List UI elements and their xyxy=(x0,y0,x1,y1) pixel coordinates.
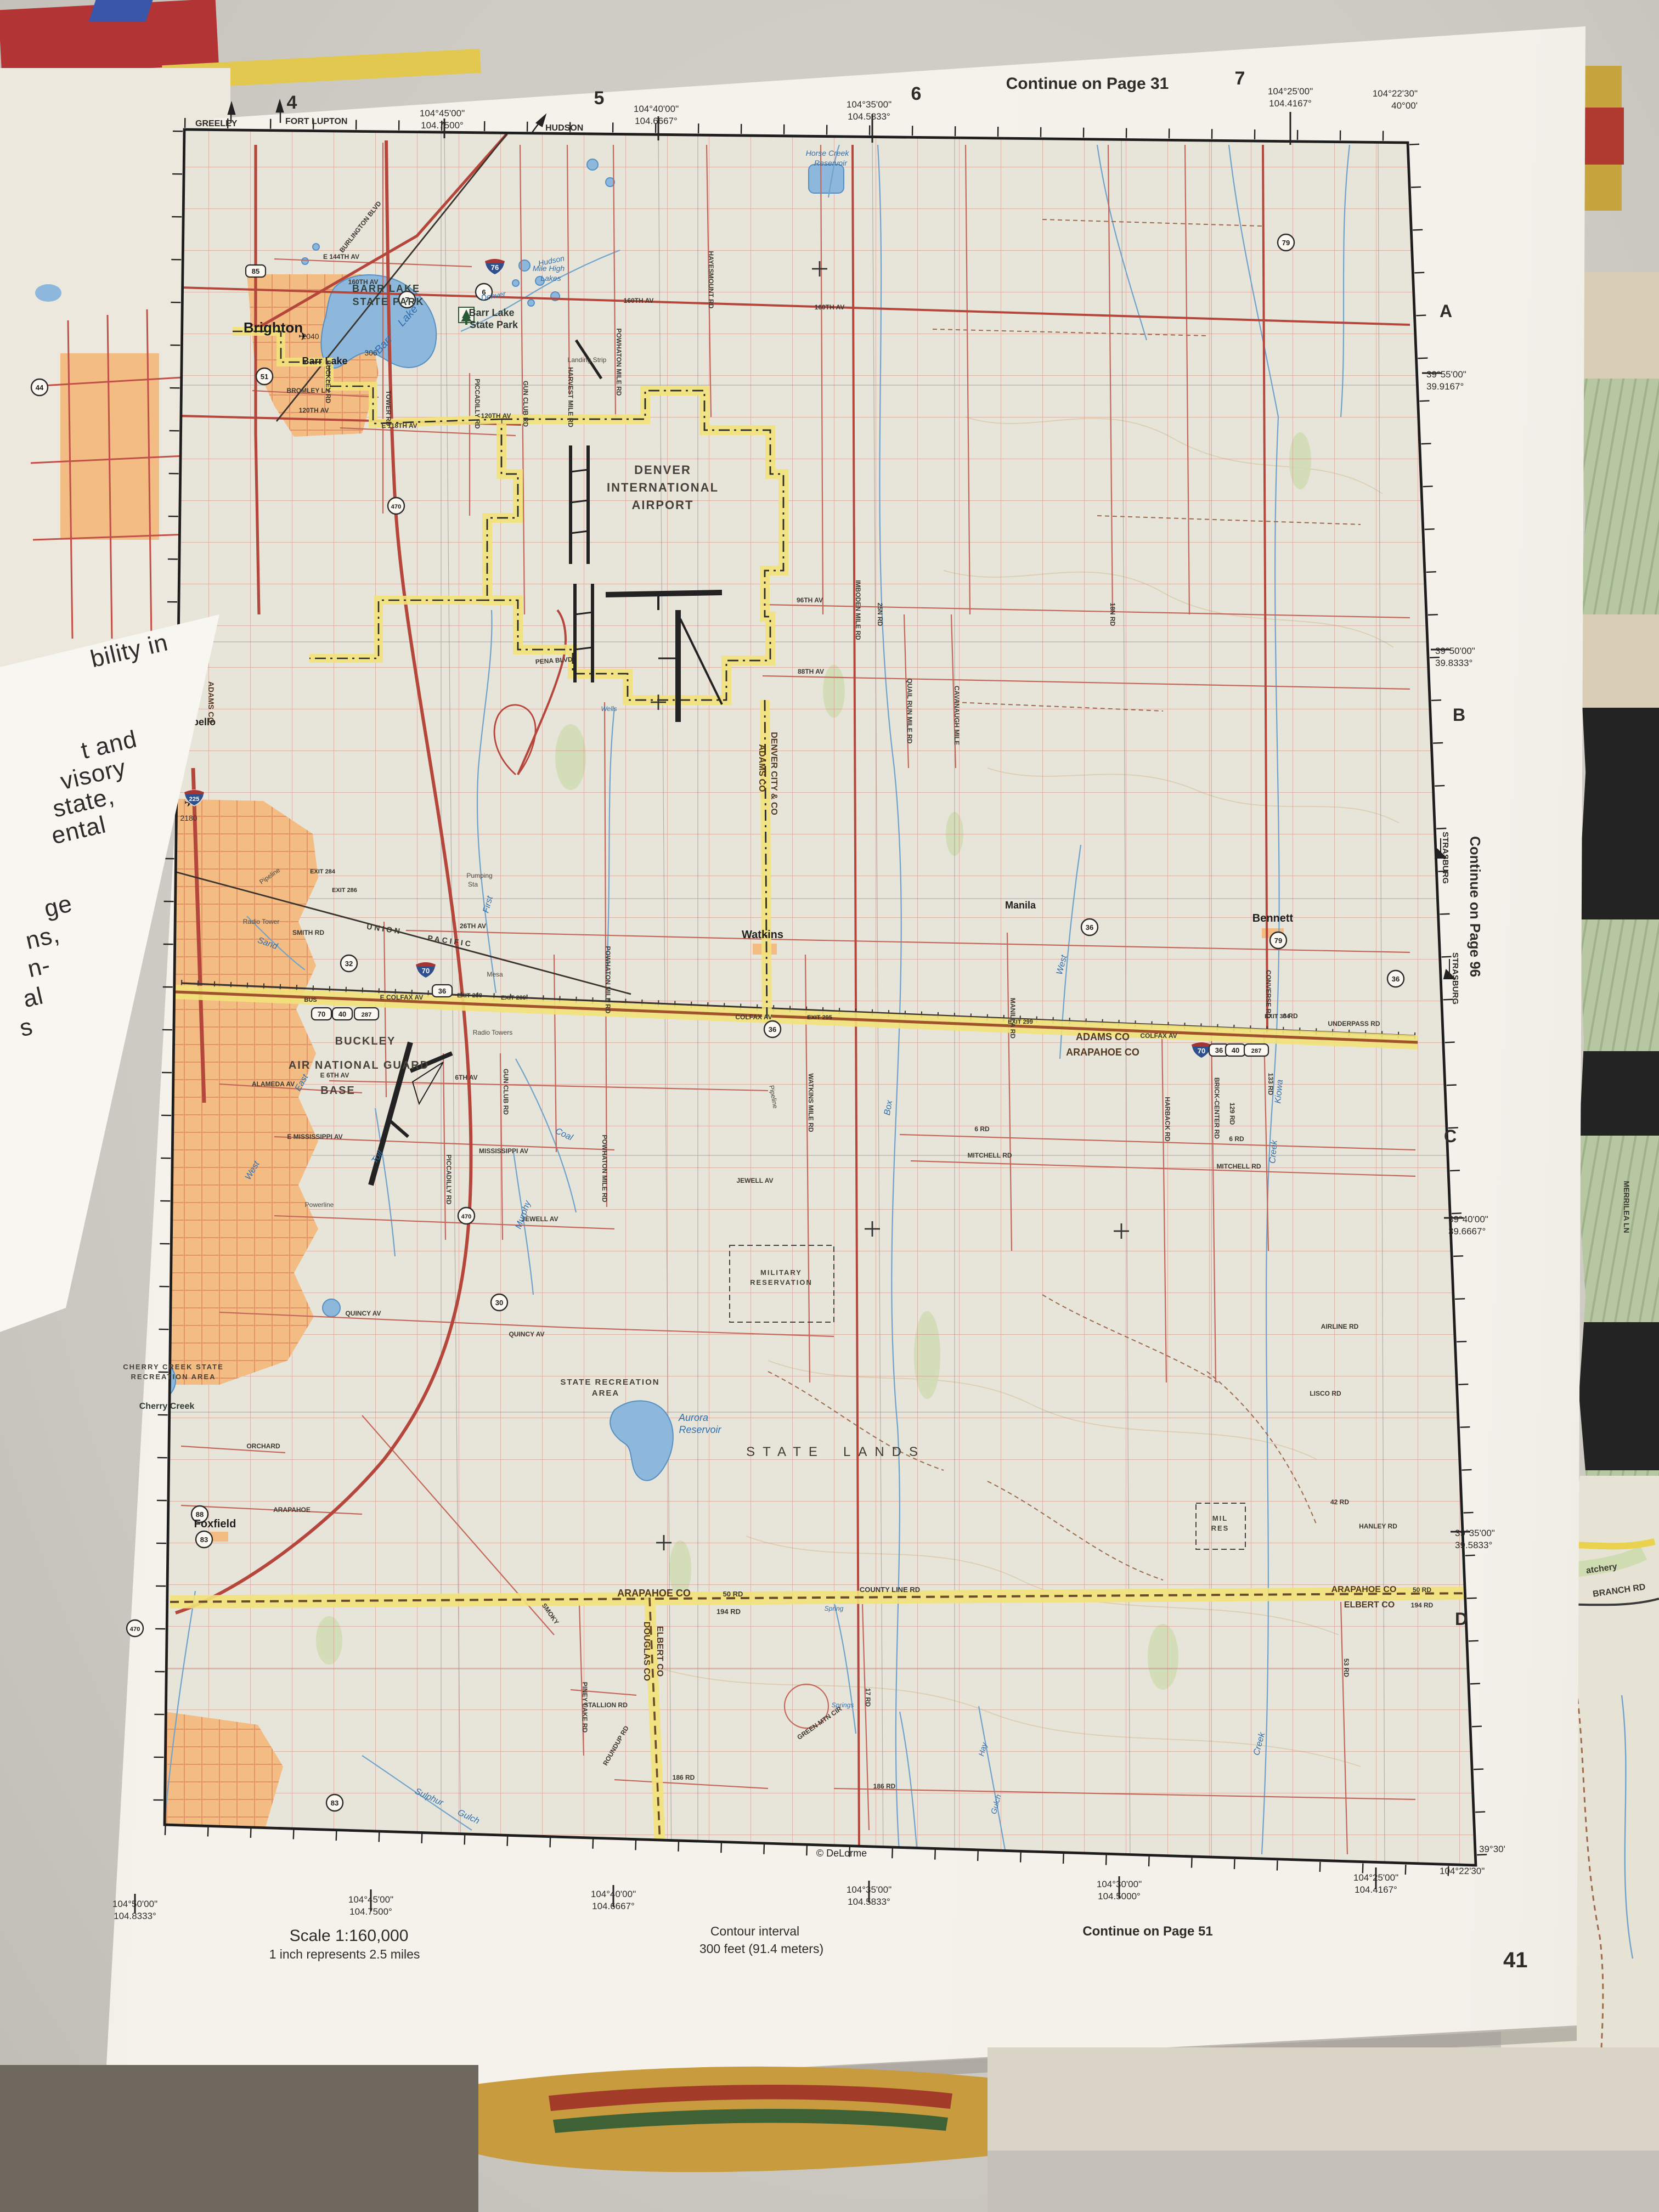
map-label: EXIT 299 xyxy=(1008,1019,1033,1025)
top-coord-1: 104°45'00"104.7500° xyxy=(420,108,465,131)
map-label: Radio Tower xyxy=(243,918,279,926)
svg-text:70: 70 xyxy=(318,1010,325,1018)
us-route-shield-icon: 70 xyxy=(312,1008,331,1020)
svg-text:70: 70 xyxy=(422,967,430,975)
map-label: EXIT 304 xyxy=(1265,1013,1290,1020)
svg-text:83: 83 xyxy=(331,1799,338,1807)
map-label: ARAPAHOE CO xyxy=(1066,1047,1139,1058)
map-label: STATE xyxy=(746,1444,825,1459)
map-label: POWHATON MILE RD xyxy=(604,946,612,1014)
state-route-icon: 36 xyxy=(1387,970,1404,987)
right-coord-4: 39°35'00"39.5833° xyxy=(1455,1527,1495,1550)
grid-letter-A: A xyxy=(1440,303,1452,323)
map-label: UNDERPASS RD xyxy=(1328,1020,1380,1028)
map-label: POWHATON MILE RD xyxy=(601,1135,608,1203)
map-label: 50 RD xyxy=(1413,1586,1431,1594)
svg-text:225: 225 xyxy=(189,796,200,803)
map-label: AIR NATIONAL GUARD xyxy=(289,1059,429,1071)
map-label: PICCADILLY RD xyxy=(445,1154,453,1205)
map-label: 18N RD xyxy=(1109,603,1116,627)
bottom-coord-corner-lat: 39°30' xyxy=(1479,1843,1505,1855)
top-coord-2: 104°40'00"104.6667° xyxy=(634,103,679,126)
grid-letter-B: B xyxy=(1453,707,1465,726)
map-label: ARAPAHOE xyxy=(273,1506,311,1514)
map-label: WATKINS MILE RD xyxy=(807,1073,815,1132)
us-route-shield-icon: 287 xyxy=(354,1008,379,1020)
map-label: © DeLorme xyxy=(816,1848,867,1859)
map-label: AREA xyxy=(592,1389,620,1398)
map-label: Sta xyxy=(468,881,478,888)
map-label: JEWELL AV xyxy=(736,1177,773,1184)
us-route-shield-icon: 287 xyxy=(1244,1044,1268,1056)
fragment-label: BRANCH RD xyxy=(1592,1582,1646,1599)
top-coord-3: 104°35'00"104.5833° xyxy=(847,99,891,122)
map-label: ARAPAHOE CO xyxy=(1331,1585,1397,1594)
map-label: 26TH AV xyxy=(460,922,486,930)
dest-fort-lupton: FORT LUPTON xyxy=(285,116,348,126)
map-label: 42 RD xyxy=(1330,1498,1349,1506)
map-label: Brighton xyxy=(244,319,303,336)
map-label: 306 xyxy=(364,348,377,357)
map-label: MITCHELL RD xyxy=(967,1152,1012,1159)
grid-number-7: 7 xyxy=(1235,68,1245,90)
map-label: EXIT 288 xyxy=(457,992,482,999)
map-label: BASE xyxy=(320,1085,356,1097)
map-label: HARVEST MILE RD xyxy=(567,367,574,427)
dest-hudson: HUDSON xyxy=(545,123,583,133)
map-label: Lakes xyxy=(540,274,561,283)
svg-text:85: 85 xyxy=(252,267,259,275)
map-label: RECREATION AREA xyxy=(131,1373,216,1381)
hudson-arrow-icon xyxy=(531,115,545,134)
map-label: DOUGLAS CO xyxy=(642,1622,651,1681)
map-label: QUINCY AV xyxy=(345,1310,381,1317)
map-label: ARAPAHOE CO xyxy=(617,1588,691,1599)
state-route-icon: 79 xyxy=(1278,234,1294,251)
map-label: E 6TH AV xyxy=(320,1071,349,1079)
map-label: GUN CLUB RD xyxy=(522,381,529,427)
state-route-icon: 83 xyxy=(196,1531,212,1548)
continue-on-page-96: Continue on Page 96 xyxy=(1467,836,1483,977)
map-label: Mesa xyxy=(487,970,503,978)
map-label: STALLION RD xyxy=(584,1701,628,1709)
map-label: STATE RECREATION xyxy=(560,1378,659,1387)
map-label: PICCADILLY RD xyxy=(473,379,481,429)
aurora-urban xyxy=(167,799,318,1385)
map-label: ALAMEDA AV xyxy=(252,1080,295,1088)
svg-text:44: 44 xyxy=(36,383,44,392)
strasburg-label-1: STRASBURG xyxy=(1441,832,1451,884)
bottom-coord-5: 104°30'00"104.5000° xyxy=(1097,1878,1142,1901)
svg-text:40: 40 xyxy=(338,1010,346,1018)
strasburg-label-2: STRASBURG xyxy=(1451,952,1460,1005)
svg-text:36: 36 xyxy=(1392,975,1400,983)
svg-text:32: 32 xyxy=(345,960,353,968)
map-label: BUCKLEY xyxy=(335,1035,396,1047)
map-label: Powerline xyxy=(305,1201,334,1209)
map-label: E COLFAX AV xyxy=(380,994,424,1001)
state-route-icon: 44 xyxy=(31,379,48,396)
state-route-icon: 79 xyxy=(1270,932,1286,949)
contour-subtitle: 300 feet (91.4 meters) xyxy=(699,1943,823,1956)
map-label: Foxfield xyxy=(194,1518,236,1530)
map-label: Radio Towers xyxy=(473,1029,512,1036)
map-label: CAVANAUGH MILE xyxy=(953,686,961,745)
map-label: HANLEY RD xyxy=(1359,1522,1397,1530)
map-label: Watkins xyxy=(742,929,783,941)
fragment-label: atchery xyxy=(1585,1562,1618,1576)
map-label: INTERNATIONAL xyxy=(607,481,719,494)
map-label: E MISSISSIPPI AV xyxy=(287,1133,342,1141)
svg-text:30: 30 xyxy=(495,1299,503,1307)
state-route-icon: 83 xyxy=(326,1795,343,1811)
map-label: 120TH AV xyxy=(481,412,511,420)
svg-text:76: 76 xyxy=(491,263,499,272)
map-label: GUN CLUB RD xyxy=(502,1069,510,1115)
map-label: 186 RD xyxy=(873,1782,896,1790)
map-label: Bennett xyxy=(1252,912,1294,924)
map-label: PINEY LAKE RD xyxy=(581,1682,589,1733)
map-label: QUAIL RUN MILE RD xyxy=(906,678,913,743)
map-label: 96TH AV xyxy=(797,596,823,604)
state-route-icon: 470 xyxy=(458,1207,475,1224)
map-label: 133 RD xyxy=(1267,1073,1274,1096)
map-label: Cherry Creek xyxy=(139,1402,195,1411)
map-label: 6 RD xyxy=(1229,1135,1244,1143)
fort-lupton-arrow-icon xyxy=(276,101,283,123)
map-interior: ✈ ✈ xyxy=(127,110,1492,1887)
state-route-icon: 30 xyxy=(491,1294,507,1311)
us-route-shield-icon: 36 xyxy=(432,985,452,997)
svg-text:88: 88 xyxy=(196,1510,204,1519)
map-label: LANDS xyxy=(843,1444,926,1459)
map-label: EXIT 284 xyxy=(310,868,336,875)
fragment-labels: MERRILEA LNatcheryBRANCH RD xyxy=(1585,1181,1646,1599)
map-label: ADAMS CO xyxy=(757,744,766,792)
scale-subtitle: 1 inch represents 2.5 miles xyxy=(269,1949,420,1962)
us-route-shield-icon: 85 xyxy=(246,265,266,277)
map-label: CHERRY CREEK STATE xyxy=(123,1363,224,1371)
map-label: 17 RD xyxy=(864,1688,872,1707)
bottom-coord-1: 104°50'00"104.8333° xyxy=(112,1898,157,1921)
map-label: DENVER CITY & CO xyxy=(769,732,778,815)
svg-text:79: 79 xyxy=(1282,239,1290,247)
top-coord-4: 104°25'00"104.4167° xyxy=(1268,86,1313,109)
map-label: BUS xyxy=(304,997,317,1003)
map-label: HARBACK RD xyxy=(1164,1097,1171,1142)
right-coord-2: 39°50'00"39.8333° xyxy=(1435,645,1475,668)
map-label: 160TH AV xyxy=(624,297,654,304)
map-label: 194 RD xyxy=(716,1607,741,1616)
us-route-shield-icon: 40 xyxy=(1226,1044,1245,1056)
map-label: Springs xyxy=(832,1701,854,1709)
svg-text:470: 470 xyxy=(461,1214,472,1220)
map-label: MITCHELL RD xyxy=(1216,1163,1261,1170)
map-label: 160TH AV xyxy=(348,278,379,286)
map-label: MISSISSIPPI AV xyxy=(479,1147,528,1155)
map-label: SMITH RD xyxy=(292,929,324,936)
map-label: AIRLINE RD xyxy=(1321,1323,1359,1330)
fragment-label: MERRILEA LN xyxy=(1622,1181,1631,1233)
map-label: POWHATON MILE RD xyxy=(615,329,623,396)
bottom-coord-6: 104°25'00"104.4167° xyxy=(1353,1872,1398,1895)
dest-greeley: GREELEY xyxy=(195,119,237,128)
map-label: Barr Lake xyxy=(469,307,514,318)
bottom-coord-corner-lon: 104°22'30" xyxy=(1440,1865,1485,1877)
map-label: HAYESMOUNT RD xyxy=(707,251,715,309)
map-label: Pumping xyxy=(466,872,492,879)
svg-text:287: 287 xyxy=(1251,1048,1262,1054)
map-label: 2180 xyxy=(180,814,197,822)
map-label: 50 RD xyxy=(723,1590,743,1598)
map-label: E 144TH AV xyxy=(323,253,359,261)
state-route-icon: 36 xyxy=(1081,919,1098,935)
continue-on-page-51: Continue on Page 51 xyxy=(1082,1923,1212,1939)
map-label: EXIT 295 xyxy=(807,1014,832,1021)
desk-bottom xyxy=(988,2151,1659,2212)
state-route-icon: 51 xyxy=(256,368,273,385)
map-label: IMBODEN MILE RD xyxy=(854,580,862,640)
map-label: 186 RD xyxy=(673,1774,695,1781)
bottom-coord-3: 104°40'00"104.6667° xyxy=(591,1888,636,1911)
state-route-icon: 470 xyxy=(127,1620,143,1637)
right-coord-1: 39°55'00"39.9167° xyxy=(1426,369,1466,392)
grid-number-4: 4 xyxy=(287,92,297,114)
map-label: 2040 xyxy=(302,332,319,341)
map-label: EXIT 286 xyxy=(332,887,357,894)
svg-text:470: 470 xyxy=(391,504,402,510)
svg-text:83: 83 xyxy=(200,1536,208,1544)
map-label: QUINCY AV xyxy=(509,1330,544,1338)
map-label: Landing Strip xyxy=(568,356,607,364)
map-label: 160TH AV xyxy=(815,303,845,311)
top-coord-corner: 104°22'30"40°00' xyxy=(1341,88,1418,111)
scale-title: Scale 1:160,000 xyxy=(290,1927,409,1945)
map-label: CONVERSE RD xyxy=(1265,970,1272,1018)
map-label: BUCKLEY RD xyxy=(324,360,332,404)
map-label: AIRPORT xyxy=(632,498,694,512)
map-label: 194 RD xyxy=(1411,1601,1434,1609)
us-route-shield-icon: 40 xyxy=(332,1008,352,1020)
map-label: Manila xyxy=(1005,900,1036,911)
map-label: TOWER RD xyxy=(385,390,392,426)
map-label: Reservoir xyxy=(814,159,848,167)
map-label: ELBERT CO xyxy=(655,1626,664,1677)
map-label: ADAMS CO xyxy=(207,681,216,723)
map-label: RESERVATION xyxy=(750,1278,812,1286)
map-label: MILITARY xyxy=(760,1268,802,1277)
map-label: 53 RD xyxy=(1342,1658,1350,1677)
map-label: COLFAX AV xyxy=(735,1013,772,1021)
horse-creek-reservoir xyxy=(809,165,844,193)
grid-letter-C: C xyxy=(1444,1128,1457,1148)
svg-text:79: 79 xyxy=(1274,936,1282,945)
svg-text:40: 40 xyxy=(1232,1046,1239,1054)
map-label: COLFAX AV xyxy=(1140,1032,1177,1040)
svg-text:51: 51 xyxy=(261,373,268,381)
bottom-page-stack xyxy=(0,2019,1659,2212)
map-label: ELBERT CO xyxy=(1344,1600,1395,1610)
svg-text:470: 470 xyxy=(130,1626,140,1633)
map-label: Spring xyxy=(825,1605,844,1612)
svg-text:287: 287 xyxy=(362,1012,372,1018)
map-artwork: ✈ ✈ xyxy=(0,0,1659,2212)
map-label: BROMLEY LN xyxy=(286,387,330,394)
map-label: 129 RD xyxy=(1228,1103,1236,1125)
map-label: 120TH AV xyxy=(299,407,329,414)
map-label: 6TH AV xyxy=(455,1074,477,1081)
svg-text:36: 36 xyxy=(1215,1046,1223,1054)
svg-text:70: 70 xyxy=(1198,1047,1205,1055)
map-label: Aurora xyxy=(678,1412,708,1423)
map-label: ORCHARD xyxy=(246,1442,280,1450)
map-label: RES xyxy=(1211,1524,1229,1532)
shadow-area xyxy=(0,2065,478,2212)
state-route-icon: 36 xyxy=(764,1021,781,1037)
map-label: BRICK-CENTER RD xyxy=(1213,1077,1221,1139)
svg-text:36: 36 xyxy=(1086,923,1093,932)
map-label: EXIT 289 xyxy=(501,995,526,1001)
svg-text:36: 36 xyxy=(769,1025,776,1034)
grid-number-6: 6 xyxy=(911,83,922,105)
bottom-coord-4: 104°35'00"104.5833° xyxy=(847,1884,891,1907)
map-label: State Park xyxy=(470,319,518,330)
page-number: 41 xyxy=(1503,1949,1528,1974)
contour-title: Contour interval xyxy=(710,1926,799,1939)
map-label: DENVER xyxy=(634,463,691,477)
map-label: COUNTY LINE RD xyxy=(860,1585,920,1594)
right-coord-3: 39°40'00"39.6667° xyxy=(1448,1214,1488,1237)
map-label: Wells xyxy=(601,705,617,713)
state-route-icon: 470 xyxy=(388,498,404,514)
bottom-coord-2: 104°45'00"104.7500° xyxy=(348,1894,393,1917)
map-label: ADAMS CO xyxy=(1076,1031,1130,1042)
map-label: LISCO RD xyxy=(1310,1390,1341,1397)
map-label: MIL xyxy=(1212,1514,1228,1522)
map-label: Horse Creek xyxy=(806,149,850,157)
map-label: 88TH AV xyxy=(798,668,824,675)
map-label: 25N RD xyxy=(876,603,884,627)
svg-text:36: 36 xyxy=(438,987,446,995)
map-label: Reservoir xyxy=(679,1424,721,1435)
grid-letter-D: D xyxy=(1455,1611,1468,1630)
state-route-icon: 32 xyxy=(341,955,357,972)
quincy-reservoir xyxy=(323,1299,340,1317)
grid-number-5: 5 xyxy=(594,88,605,110)
continue-on-page-31: Continue on Page 31 xyxy=(1006,75,1169,93)
map-label: 6 RD xyxy=(974,1125,990,1133)
photo-of-atlas: ✈ ✈ xyxy=(0,0,1659,2212)
